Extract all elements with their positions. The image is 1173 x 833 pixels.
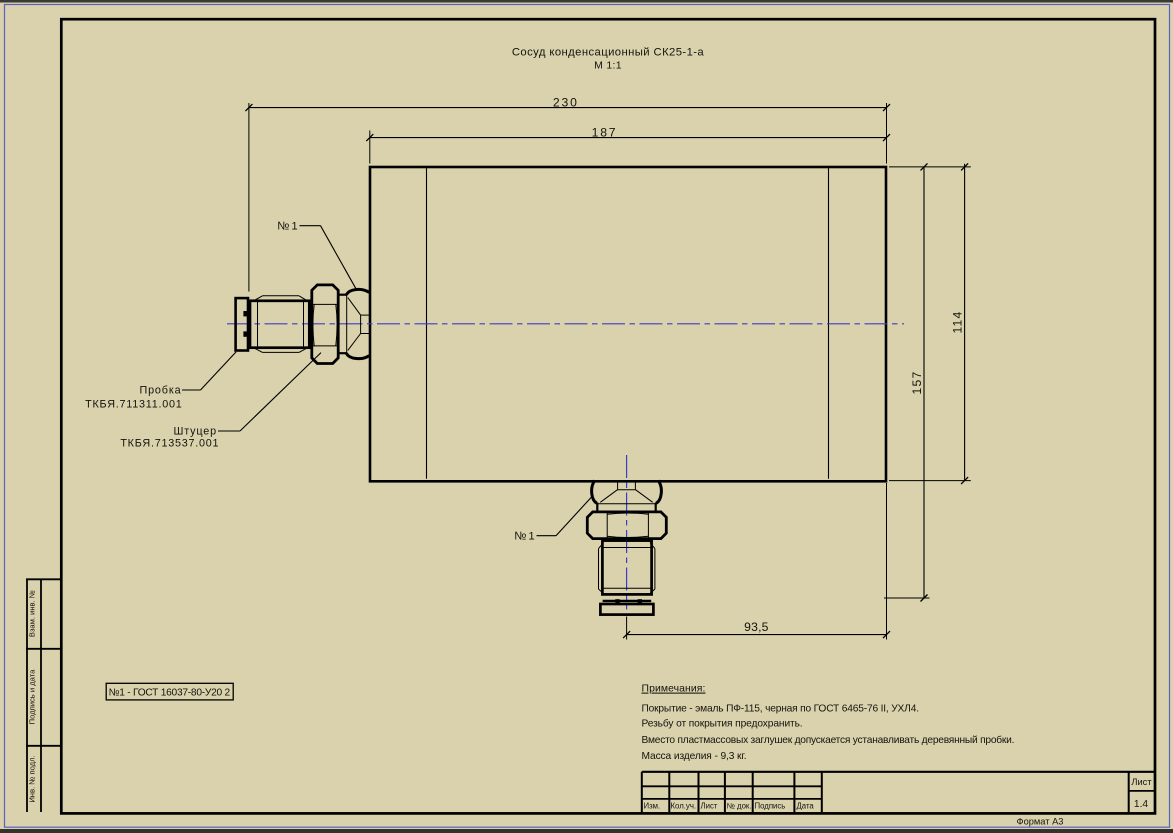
svg-text:М 1:1: М 1:1 (594, 60, 622, 72)
svg-text:Резьбу от покрытия предохранит: Резьбу от покрытия предохранить. (642, 718, 803, 730)
svg-text:Инв. № подл.: Инв. № подл. (28, 755, 37, 802)
svg-text:230: 230 (553, 95, 579, 109)
svg-text:1.4: 1.4 (1134, 799, 1148, 810)
svg-text:Масса изделия - 9,3 кг.: Масса изделия - 9,3 кг. (642, 751, 747, 762)
svg-text:Кол.уч.: Кол.уч. (671, 801, 697, 810)
svg-text:Изм.: Изм. (644, 801, 661, 810)
svg-text:Формат А3: Формат А3 (1017, 817, 1064, 827)
svg-text:ТКБЯ.711311.001: ТКБЯ.711311.001 (85, 399, 182, 411)
svg-text:№1 - ГОСТ 16037-80-У20 2: №1 - ГОСТ 16037-80-У20 2 (109, 688, 231, 699)
svg-text:№ док.: № док. (727, 801, 752, 810)
svg-text:187: 187 (592, 125, 618, 139)
svg-text:Подпись: Подпись (755, 801, 786, 810)
svg-text:157: 157 (910, 371, 924, 395)
svg-text:Дата: Дата (797, 801, 815, 810)
svg-text:Подпись и дата: Подпись и дата (28, 669, 37, 724)
svg-text:Покрытие - эмаль ПФ-115, черна: Покрытие - эмаль ПФ-115, черная по ГОСТ … (642, 704, 919, 715)
svg-text:№1: №1 (277, 221, 300, 233)
svg-text:Взам. инв. №: Взам. инв. № (28, 590, 37, 637)
svg-text:Лист: Лист (1131, 777, 1152, 787)
svg-text:93,5: 93,5 (744, 620, 769, 634)
svg-text:Штуцер: Штуцер (173, 426, 217, 438)
svg-text:Пробка: Пробка (139, 385, 181, 397)
svg-text:ТКБЯ.713537.001: ТКБЯ.713537.001 (120, 438, 219, 450)
svg-text:Примечания:: Примечания: (642, 684, 706, 695)
svg-text:Лист: Лист (701, 801, 718, 810)
svg-text:114: 114 (951, 310, 965, 333)
svg-text:Сосуд конденсационный СК25-1-а: Сосуд конденсационный СК25-1-а (512, 47, 705, 59)
svg-text:Вместо пластмассовых заглушек: Вместо пластмассовых заглушек допускаетс… (642, 734, 1015, 746)
svg-text:№1: №1 (514, 531, 537, 543)
